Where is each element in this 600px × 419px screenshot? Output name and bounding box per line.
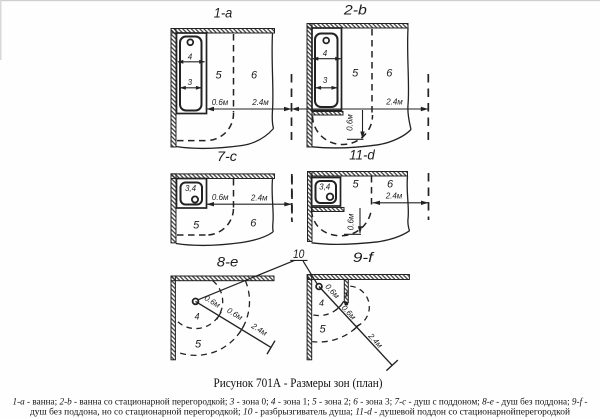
svg-text:6: 6 bbox=[251, 69, 258, 81]
svg-text:4: 4 bbox=[323, 49, 328, 58]
svg-text:3,4: 3,4 bbox=[185, 184, 197, 193]
svg-text:2.4м: 2.4м bbox=[251, 98, 269, 107]
svg-text:10: 10 bbox=[293, 247, 305, 261]
svg-text:Рисунок 701А - Размеры зон (пл: Рисунок 701А - Размеры зон (план) bbox=[214, 376, 383, 390]
svg-text:3: 3 bbox=[188, 78, 193, 87]
svg-text:3: 3 bbox=[323, 76, 328, 85]
svg-text:5: 5 bbox=[195, 339, 202, 351]
svg-text:1-a: 1-a bbox=[214, 4, 233, 20]
svg-text:0.6м: 0.6м bbox=[212, 193, 229, 202]
svg-text:5: 5 bbox=[319, 324, 326, 336]
svg-text:2.4м: 2.4м bbox=[385, 98, 403, 107]
svg-text:душ без поддона, но со стацион: душ без поддона, но со стационарной пере… bbox=[30, 407, 570, 417]
svg-text:5: 5 bbox=[352, 68, 359, 80]
svg-text:5: 5 bbox=[216, 69, 223, 81]
svg-text:6: 6 bbox=[250, 218, 257, 230]
svg-text:4: 4 bbox=[188, 52, 193, 61]
svg-text:1-а - ванна; 2-b - ванна со ст: 1-а - ванна; 2-b - ванна со стационарной… bbox=[13, 397, 588, 407]
svg-text:0.6м: 0.6м bbox=[212, 98, 229, 107]
svg-text:8-e: 8-e bbox=[217, 253, 239, 269]
svg-text:0.6м: 0.6м bbox=[346, 213, 355, 230]
svg-text:4: 4 bbox=[319, 298, 324, 308]
svg-text:0.6м: 0.6м bbox=[346, 114, 355, 131]
svg-text:2-b: 2-b bbox=[343, 2, 367, 18]
svg-text:7-c: 7-c bbox=[217, 148, 237, 164]
svg-text:2.4м: 2.4м bbox=[250, 193, 268, 202]
svg-text:4: 4 bbox=[194, 312, 199, 322]
svg-text:6: 6 bbox=[386, 68, 393, 80]
svg-text:11-d: 11-d bbox=[349, 146, 376, 162]
svg-text:6: 6 bbox=[387, 179, 394, 191]
svg-text:9-f: 9-f bbox=[353, 249, 376, 265]
svg-text:5: 5 bbox=[193, 220, 200, 232]
svg-text:3,4: 3,4 bbox=[319, 183, 331, 192]
svg-text:5: 5 bbox=[352, 179, 359, 191]
svg-text:2.4м: 2.4м bbox=[385, 192, 403, 201]
